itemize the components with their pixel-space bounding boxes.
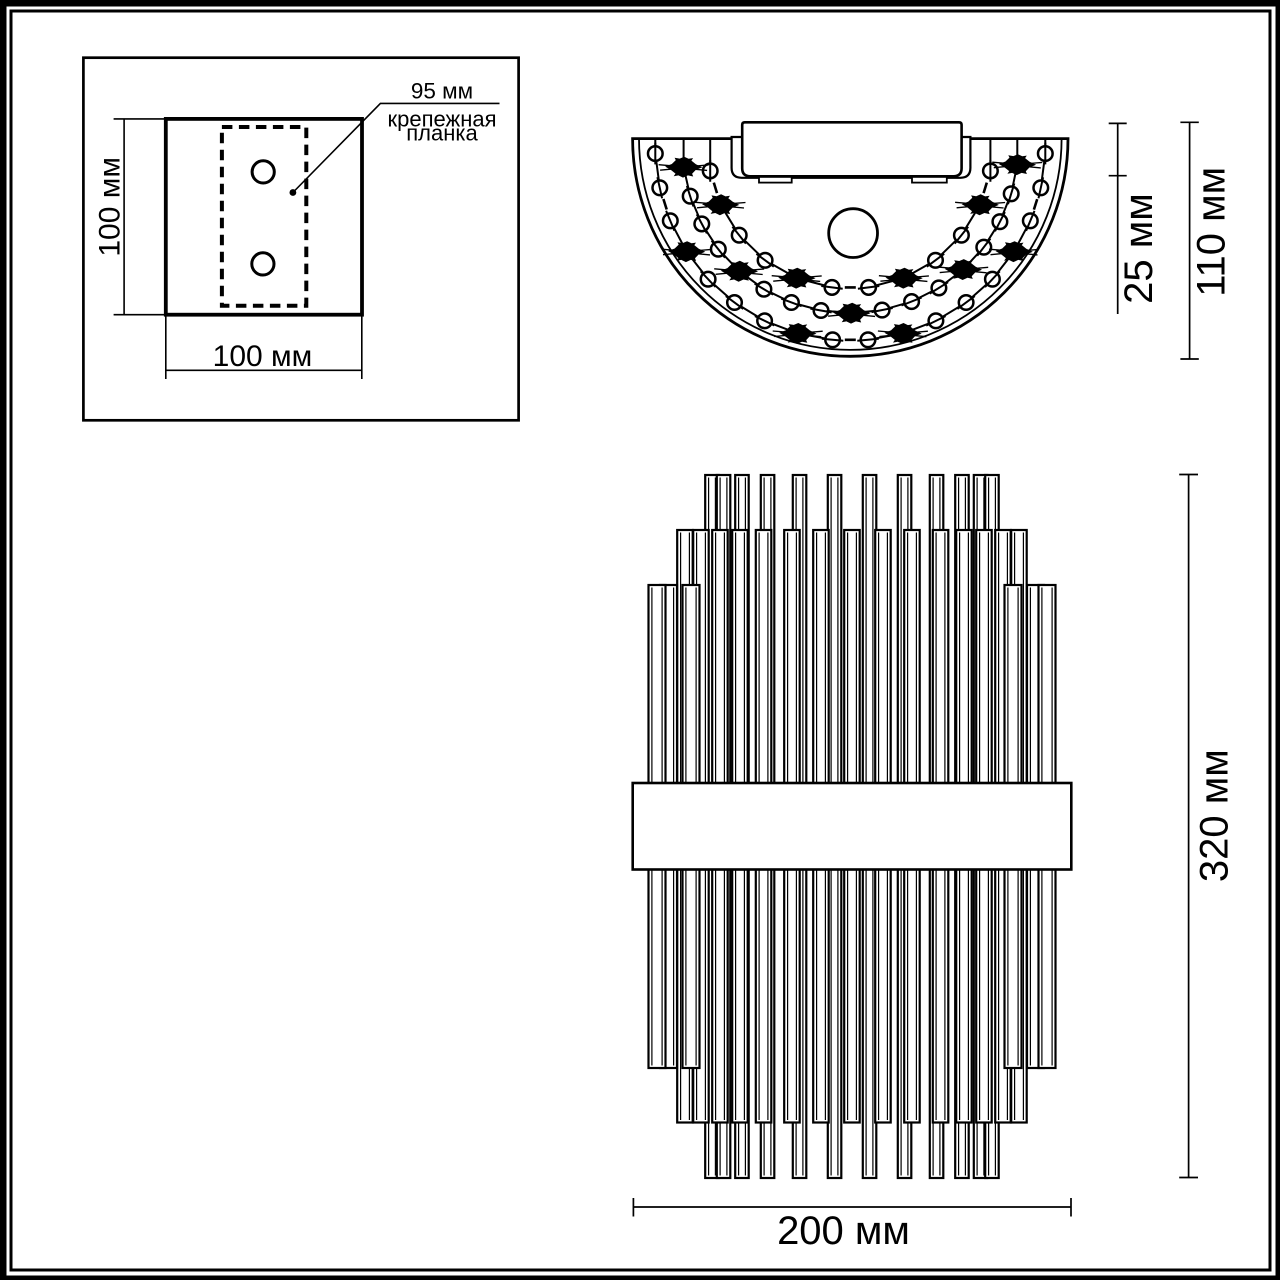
- svg-text:200 мм: 200 мм: [777, 1209, 910, 1253]
- svg-text:320 мм: 320 мм: [1193, 749, 1237, 882]
- svg-text:100 мм: 100 мм: [213, 340, 313, 373]
- svg-text:25 мм: 25 мм: [1117, 193, 1161, 304]
- svg-text:планка: планка: [406, 121, 478, 146]
- svg-text:110 мм: 110 мм: [1190, 167, 1234, 297]
- svg-text:100 мм: 100 мм: [94, 157, 127, 257]
- svg-text:95 мм: 95 мм: [411, 79, 473, 104]
